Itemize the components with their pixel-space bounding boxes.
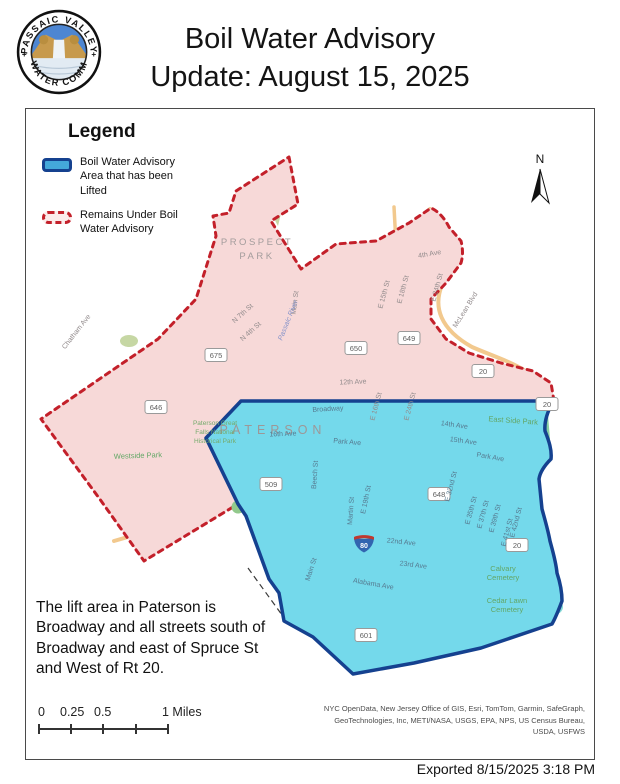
scale-line — [38, 724, 169, 734]
route-shield: 649 — [398, 332, 420, 345]
advisory-area-swatch — [42, 211, 72, 224]
map-label: 12th Ave — [339, 379, 366, 387]
interstate-number: 80 — [360, 543, 368, 550]
scale-label-1mi: 1 Miles — [162, 705, 202, 719]
title-line-2: Update: August 15, 2025 — [0, 58, 620, 96]
map-label: 16th Ave — [269, 431, 296, 439]
svg-text:509: 509 — [265, 480, 278, 489]
attribution-line: GeoTechnologies, Inc, METI/NASA, USGS, E… — [285, 715, 585, 727]
title-line-1: Boil Water Advisory — [0, 20, 620, 58]
note-line: and West of Rt 20. — [36, 659, 296, 679]
page-title: Boil Water Advisory Update: August 15, 2… — [0, 20, 620, 96]
map-attribution: NYC OpenData, New Jersey Office of GIS, … — [285, 703, 585, 738]
note-line: Broadway and east of Spruce St — [36, 639, 296, 659]
route-shield: 509 — [260, 478, 282, 491]
north-arrow: N — [531, 152, 549, 203]
lifted-area-swatch — [42, 158, 72, 172]
map-label: Cemetery — [487, 573, 520, 582]
svg-text:649: 649 — [403, 334, 416, 343]
attribution-line: NYC OpenData, New Jersey Office of GIS, … — [285, 703, 585, 715]
svg-text:650: 650 — [350, 344, 363, 353]
svg-text:675: 675 — [210, 351, 223, 360]
north-label: N — [536, 152, 545, 166]
scale-label-0: 0 — [38, 705, 45, 719]
route-shield: 646 — [145, 401, 167, 414]
scale-bar: 0 0.25 0.5 1 Miles — [38, 705, 208, 739]
route-shield: 20 — [472, 365, 494, 378]
svg-text:20: 20 — [513, 541, 521, 550]
map-frame: 80 675646650649202050964860120 PROSPECTP… — [25, 108, 595, 760]
map-label: Calvary — [490, 564, 516, 573]
scale-label-05: 0.5 — [94, 705, 111, 719]
legend-item-advisory: Remains Under Boil Water Advisory — [42, 208, 202, 237]
map-label: Cedar Lawn — [487, 596, 527, 605]
svg-text:646: 646 — [150, 403, 163, 412]
map-label: Historical Park — [194, 438, 237, 445]
lift-area-note: The lift area in Paterson is Broadway an… — [36, 598, 296, 680]
map-label: PARK — [239, 251, 274, 262]
attribution-line: USDA, USFWS — [285, 726, 585, 738]
export-timestamp: Exported 8/15/2025 3:18 PM — [417, 761, 595, 777]
legend-title: Legend — [68, 121, 202, 143]
map-label: Paterson Great — [193, 420, 237, 427]
legend: Legend Boil Water Advisory Area that has… — [42, 115, 202, 246]
route-shield: 20 — [506, 539, 528, 552]
route-shield: 675 — [205, 349, 227, 362]
map-label: McLean Blvd — [452, 291, 479, 329]
route-shield: 20 — [536, 398, 558, 411]
map-label: Westside Park — [114, 450, 163, 461]
legend-item-lifted: Boil Water Advisory Area that has been L… — [42, 155, 202, 198]
note-line: The lift area in Paterson is — [36, 598, 296, 618]
map-label: Chatham Ave — [61, 313, 92, 350]
map-label: PROSPECT — [221, 237, 293, 248]
svg-text:20: 20 — [479, 367, 487, 376]
map-label: Cemetery — [491, 605, 524, 614]
boil-water-advisory-page: { "header": { "title_line1": "Boil Water… — [0, 0, 620, 784]
svg-text:601: 601 — [360, 631, 373, 640]
svg-text:648: 648 — [433, 490, 446, 499]
map-label: Falls National — [195, 429, 235, 436]
note-line: Broadway and all streets south of — [36, 618, 296, 638]
legend-item-advisory-label: Remains Under Boil Water Advisory — [80, 208, 198, 237]
legend-item-lifted-label: Boil Water Advisory Area that has been L… — [80, 155, 198, 198]
scale-label-025: 0.25 — [60, 705, 84, 719]
route-shield: 601 — [355, 629, 377, 642]
route-shield: 650 — [345, 342, 367, 355]
svg-text:20: 20 — [543, 400, 551, 409]
